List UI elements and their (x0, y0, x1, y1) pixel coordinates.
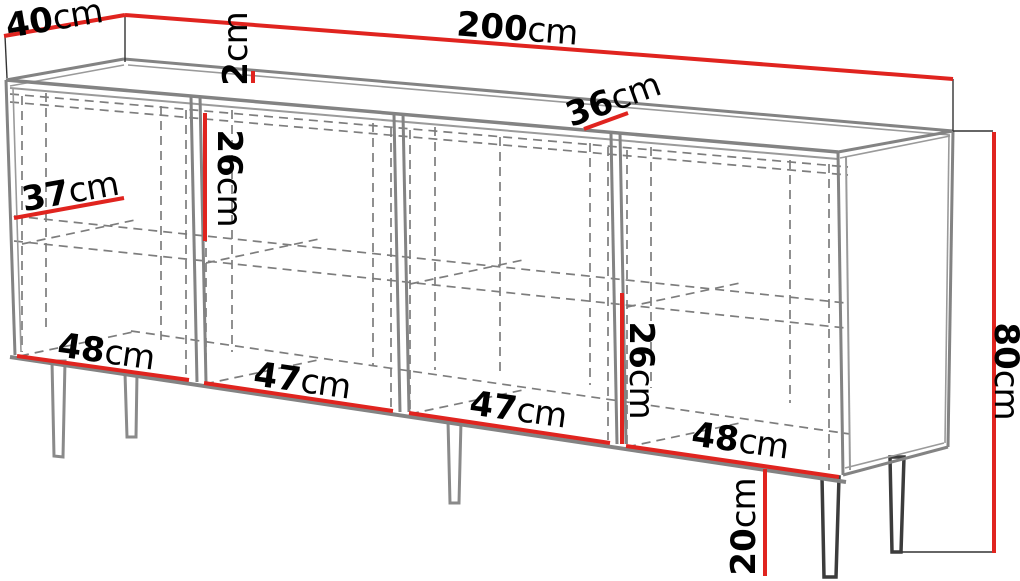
right-shelf-26-label: 26cm (621, 321, 661, 418)
dimension-lines (4, 15, 994, 576)
diagram-canvas: 40cm 200cm 2cm 36cm 37cm 26cm 26cm 48cm … (0, 0, 1020, 581)
height-80-label: 80cm (986, 322, 1020, 419)
left-shelf-26-label: 26cm (209, 129, 249, 226)
dimension-labels: 40cm 200cm 2cm 36cm 37cm 26cm 26cm 48cm … (3, 0, 1020, 576)
extension-lines (5, 15, 993, 552)
depth-40-label: 40cm (3, 0, 105, 47)
top-depth-36-label: 36cm (561, 65, 666, 136)
leg-20-label: 20cm (724, 478, 764, 575)
top-thickness-2-label: 2cm (216, 12, 256, 86)
front-left-leg (52, 361, 65, 457)
back-left-leg (125, 373, 137, 437)
width-200-label: 200cm (455, 4, 579, 53)
back-right-leg (890, 457, 904, 552)
sideboard-dimension-diagram: 40cm 200cm 2cm 36cm 37cm 26cm 26cm 48cm … (0, 0, 1020, 581)
comp2-47-label: 47cm (251, 354, 353, 407)
front-middle-leg (448, 421, 461, 503)
comp1-48-label: 48cm (55, 325, 157, 378)
front-right-leg (822, 477, 839, 577)
shelf-depth-37-label: 37cm (19, 164, 122, 220)
